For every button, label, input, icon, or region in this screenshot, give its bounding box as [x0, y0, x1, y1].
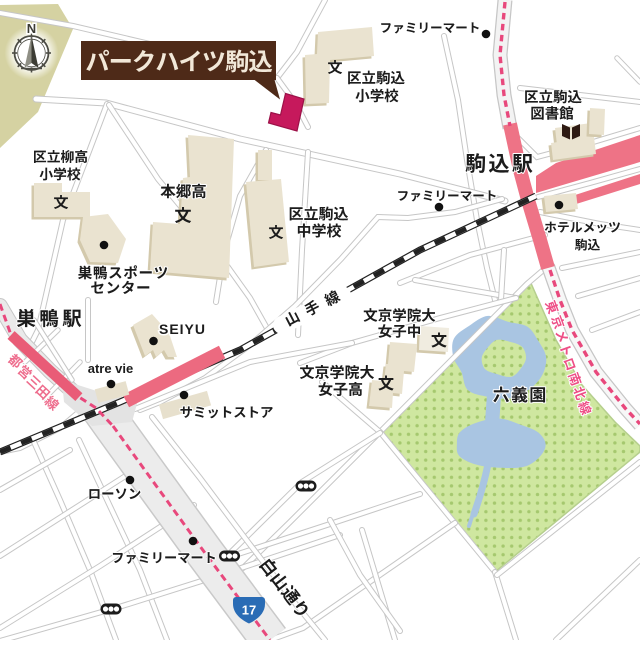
svg-text:SEIYU: SEIYU — [159, 321, 206, 337]
svg-text:atre vie: atre vie — [88, 361, 134, 376]
svg-text:N: N — [27, 21, 36, 36]
svg-text:17: 17 — [242, 603, 256, 618]
